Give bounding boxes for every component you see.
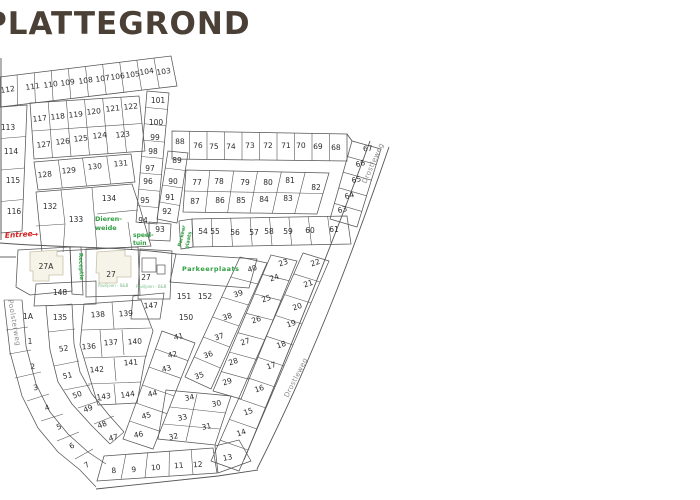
plot-number: 121 [105, 103, 120, 113]
plot-number: 141 [123, 358, 138, 368]
parcel-divider [1, 168, 25, 170]
parcel-divider [15, 372, 41, 378]
plot-number: 27 [106, 270, 116, 279]
plot-number: 10 [151, 463, 162, 473]
paviljoen-note: Paviljoen - B&B [98, 283, 129, 288]
receptie-label: Receptie [77, 253, 84, 281]
plot-number: 138 [90, 310, 105, 320]
plot-number: 97 [145, 164, 155, 173]
plot-number: 113 [1, 123, 16, 132]
plot-number: 148 [53, 288, 68, 297]
plot-number: 55 [210, 227, 220, 236]
plot-number: 34 [184, 392, 195, 403]
plot-number: 144 [120, 389, 136, 400]
plot-number: 82 [311, 183, 321, 192]
plot-number: 72 [263, 141, 273, 150]
plot-number: 19 [285, 318, 297, 330]
parcel-divider [160, 202, 180, 206]
plot-number: 7 [82, 460, 91, 470]
parcel-divider [130, 421, 161, 431]
parcel-divider [100, 330, 102, 357]
plot-number: 147 [143, 301, 158, 311]
plot-number: 43 [161, 363, 172, 374]
plot-number: 130 [87, 161, 102, 171]
plot-number: 40 [246, 263, 258, 275]
plot-number: 30 [211, 398, 222, 409]
plot-number: 90 [168, 177, 178, 186]
entree-arrow-icon: → [32, 230, 39, 239]
plot-number: 4 [43, 403, 51, 413]
plot-number: 57 [249, 228, 259, 237]
plot-number: 46 [133, 429, 144, 440]
plot-number: 142 [89, 365, 104, 375]
plot-number: 8 [111, 466, 117, 475]
parcel-divider [128, 222, 132, 250]
paviljoen-note: Paviljoen - B&B [136, 284, 167, 289]
plot-number: 94 [138, 216, 148, 225]
plot-number: 15 [242, 406, 254, 418]
plot-number: 64 [344, 190, 356, 201]
plot-number: 9 [131, 465, 137, 474]
plot-number: 27 [141, 273, 151, 282]
plot-number: 52 [58, 343, 69, 353]
plot-number: 1A [23, 312, 34, 321]
plot-number: 84 [259, 195, 269, 204]
plot-number: 47 [108, 432, 120, 443]
plot-number: 45 [141, 410, 153, 421]
plot-number: 20 [291, 301, 303, 313]
plot-number: 60 [305, 226, 315, 235]
parcel-divider [83, 158, 87, 186]
plot-number: 80 [263, 178, 273, 187]
plot-number: 70 [296, 141, 306, 150]
site-map: 1121111101091081071061051041031011009998… [0, 44, 700, 500]
road-line [347, 134, 352, 141]
plot-number: 42 [167, 349, 178, 360]
plot-number: 49 [82, 403, 94, 415]
plot-number: 126 [55, 136, 70, 146]
plot-number: 118 [50, 111, 65, 121]
parcel-divider [145, 453, 148, 478]
plot-number: 125 [73, 133, 88, 143]
plot-number: 61 [329, 225, 339, 234]
parcel-divider [107, 156, 111, 184]
plot-number: 134 [102, 194, 117, 203]
plot-number: 75 [209, 142, 219, 151]
plot-number: 22 [309, 257, 321, 269]
plot-number: 12 [193, 460, 204, 470]
plot-number: 63 [337, 204, 349, 215]
parcel-divider [146, 107, 168, 109]
parcel-divider [239, 399, 266, 408]
plot-number: 103 [156, 66, 172, 77]
facility-label: tuin [133, 240, 146, 247]
plot-number: 28 [227, 356, 239, 368]
plot-number: 114 [4, 147, 19, 156]
plot-number: 66 [355, 158, 367, 169]
plot-number: 92 [162, 207, 172, 216]
parcel-divider [75, 449, 93, 459]
plot-number: 111 [25, 81, 41, 92]
plot-number: 68 [331, 143, 341, 152]
plot-number: 54 [198, 227, 208, 236]
page-title: PLATTEGROND [0, 6, 251, 42]
plot-number: 132 [43, 202, 58, 211]
parcel-divider [1, 200, 23, 202]
parcel-divider [48, 329, 75, 332]
plot-number: 18 [275, 339, 287, 351]
road-line [0, 243, 176, 254]
plot-number: 67 [363, 144, 374, 154]
plot-number: 86 [215, 196, 225, 205]
plot-number: 31 [201, 421, 212, 432]
plot-number: 88 [175, 137, 185, 146]
plot-number: 124 [92, 130, 107, 140]
plot-number: 77 [192, 178, 202, 187]
plot-number: 27 [239, 336, 251, 348]
parcel-divider [139, 189, 160, 191]
plot-number: 123 [115, 129, 130, 139]
parcel-divider [1, 137, 26, 139]
parcel-divider [63, 224, 65, 252]
plot-number: 83 [283, 194, 293, 203]
plot-number: 110 [43, 79, 59, 90]
plot-number: 73 [245, 141, 255, 150]
street-label: Drostleweg [283, 357, 310, 399]
plot-number: 117 [32, 113, 47, 123]
plot-number: 107 [95, 73, 111, 84]
parcel-divider [57, 432, 79, 441]
plot-number: 143 [96, 391, 112, 402]
plot-number: 6 [68, 441, 77, 451]
plot-number: 91 [165, 193, 175, 202]
parcel-divider [121, 454, 126, 479]
plot-number: 108 [78, 75, 94, 86]
plot-number: 50 [71, 389, 83, 401]
plot-number: 59 [283, 227, 293, 236]
plot-number: 37 [213, 331, 225, 343]
plot-number: 74 [226, 142, 236, 151]
plot-number: 87 [190, 197, 200, 206]
parcel-divider [61, 190, 65, 224]
plot-number: 81 [285, 176, 295, 185]
plot-number: 32 [168, 431, 179, 442]
plot-number: 129 [61, 165, 76, 175]
plot-number: 115 [6, 176, 21, 185]
parcel-divider [97, 210, 138, 214]
parcel-divider [112, 302, 114, 329]
parcel-divider [27, 394, 49, 401]
parcel-divider [231, 277, 258, 284]
plot-number: 71 [281, 141, 291, 150]
plot-number: 151 [177, 292, 192, 301]
road-line [257, 147, 389, 469]
parcel-divider [41, 414, 63, 421]
plot-number: 98 [148, 147, 158, 156]
parcel-band-edge [22, 300, 106, 464]
plot-number: 29 [221, 376, 233, 388]
plot-number: 11 [174, 461, 185, 471]
plot-number: 25 [260, 293, 272, 305]
plot-number: 79 [240, 178, 250, 187]
plot-number: 122 [123, 101, 138, 111]
parcel-divider [140, 173, 161, 175]
plot-number: 109 [60, 77, 76, 88]
building-footprint [157, 265, 165, 274]
plot-number: 133 [69, 215, 84, 224]
parcel-divider [122, 330, 124, 355]
plot-number: 150 [179, 313, 194, 322]
facility-label: speel- [133, 232, 154, 239]
parcel-divider [88, 382, 141, 384]
plot-number: 16 [253, 383, 265, 395]
plot-number: 104 [139, 66, 155, 77]
plot-number: 95 [140, 196, 150, 205]
parcel-divider [114, 358, 116, 381]
plot-number: 51 [62, 370, 73, 381]
plot-number: 135 [53, 313, 68, 322]
parcel-divider [36, 224, 65, 226]
entree-label: Entree [5, 229, 33, 240]
parcel-divider [17, 75, 18, 105]
plot-number: 128 [37, 169, 52, 179]
facility-label: weide [95, 224, 117, 232]
plot-number: 119 [68, 109, 83, 119]
plot-number: 127 [36, 139, 51, 149]
plot-number: 24 [268, 272, 280, 284]
parcel-divider [165, 168, 185, 171]
plot-number: 26 [250, 314, 262, 326]
parcel-divider [114, 384, 116, 404]
parkeerplaats-label: Parkeerplaats [182, 265, 239, 273]
plot-number: 140 [127, 337, 142, 347]
plot-number: 93 [155, 225, 165, 234]
plot-number: 89 [172, 156, 182, 165]
plot-number: 96 [143, 177, 153, 186]
plot-number: 48 [96, 419, 108, 431]
plot-number: 78 [214, 177, 224, 186]
facility-label: Dieren- [95, 215, 122, 223]
plot-number: 139 [118, 309, 133, 319]
plot-number: 36 [202, 349, 214, 361]
plot-number: 116 [7, 207, 22, 216]
plot-number: 99 [150, 133, 160, 142]
plot-number: 13 [222, 452, 233, 463]
building-footprint [142, 258, 156, 272]
plot-number: 27A [39, 262, 55, 271]
plot-number: 112 [0, 84, 16, 95]
plot-number: 3 [33, 383, 39, 393]
plot-number: 152 [198, 292, 213, 301]
plot-number: 41 [173, 331, 184, 342]
plot-number: 69 [313, 142, 323, 151]
plot-number: 136 [81, 342, 96, 352]
parcel-divider [142, 157, 164, 159]
parcel-divider [54, 361, 79, 366]
plot-number: 38 [221, 311, 233, 323]
parcel-divider [137, 206, 158, 208]
plot-number: 137 [103, 338, 118, 348]
plot-number: 120 [86, 106, 101, 116]
plot-number: 17 [265, 360, 277, 372]
plot-number: 85 [236, 196, 246, 205]
plot-number: 2 [30, 362, 36, 371]
plot-number: 100 [149, 118, 164, 127]
plot-number: 106 [110, 71, 126, 82]
plot-number: 1 [28, 337, 33, 346]
plot-number: 14 [235, 427, 247, 439]
plot-number: 105 [125, 69, 141, 80]
plot-number: 33 [177, 412, 188, 423]
plot-number: 58 [264, 227, 274, 236]
parcel-divider [82, 328, 151, 330]
plot-number: 76 [193, 141, 203, 150]
plot-number: 131 [113, 158, 128, 168]
plot-number: 35 [193, 370, 205, 382]
plot-number: 101 [151, 96, 166, 105]
plot-number: 39 [232, 288, 244, 300]
plot-number: 56 [230, 228, 240, 237]
